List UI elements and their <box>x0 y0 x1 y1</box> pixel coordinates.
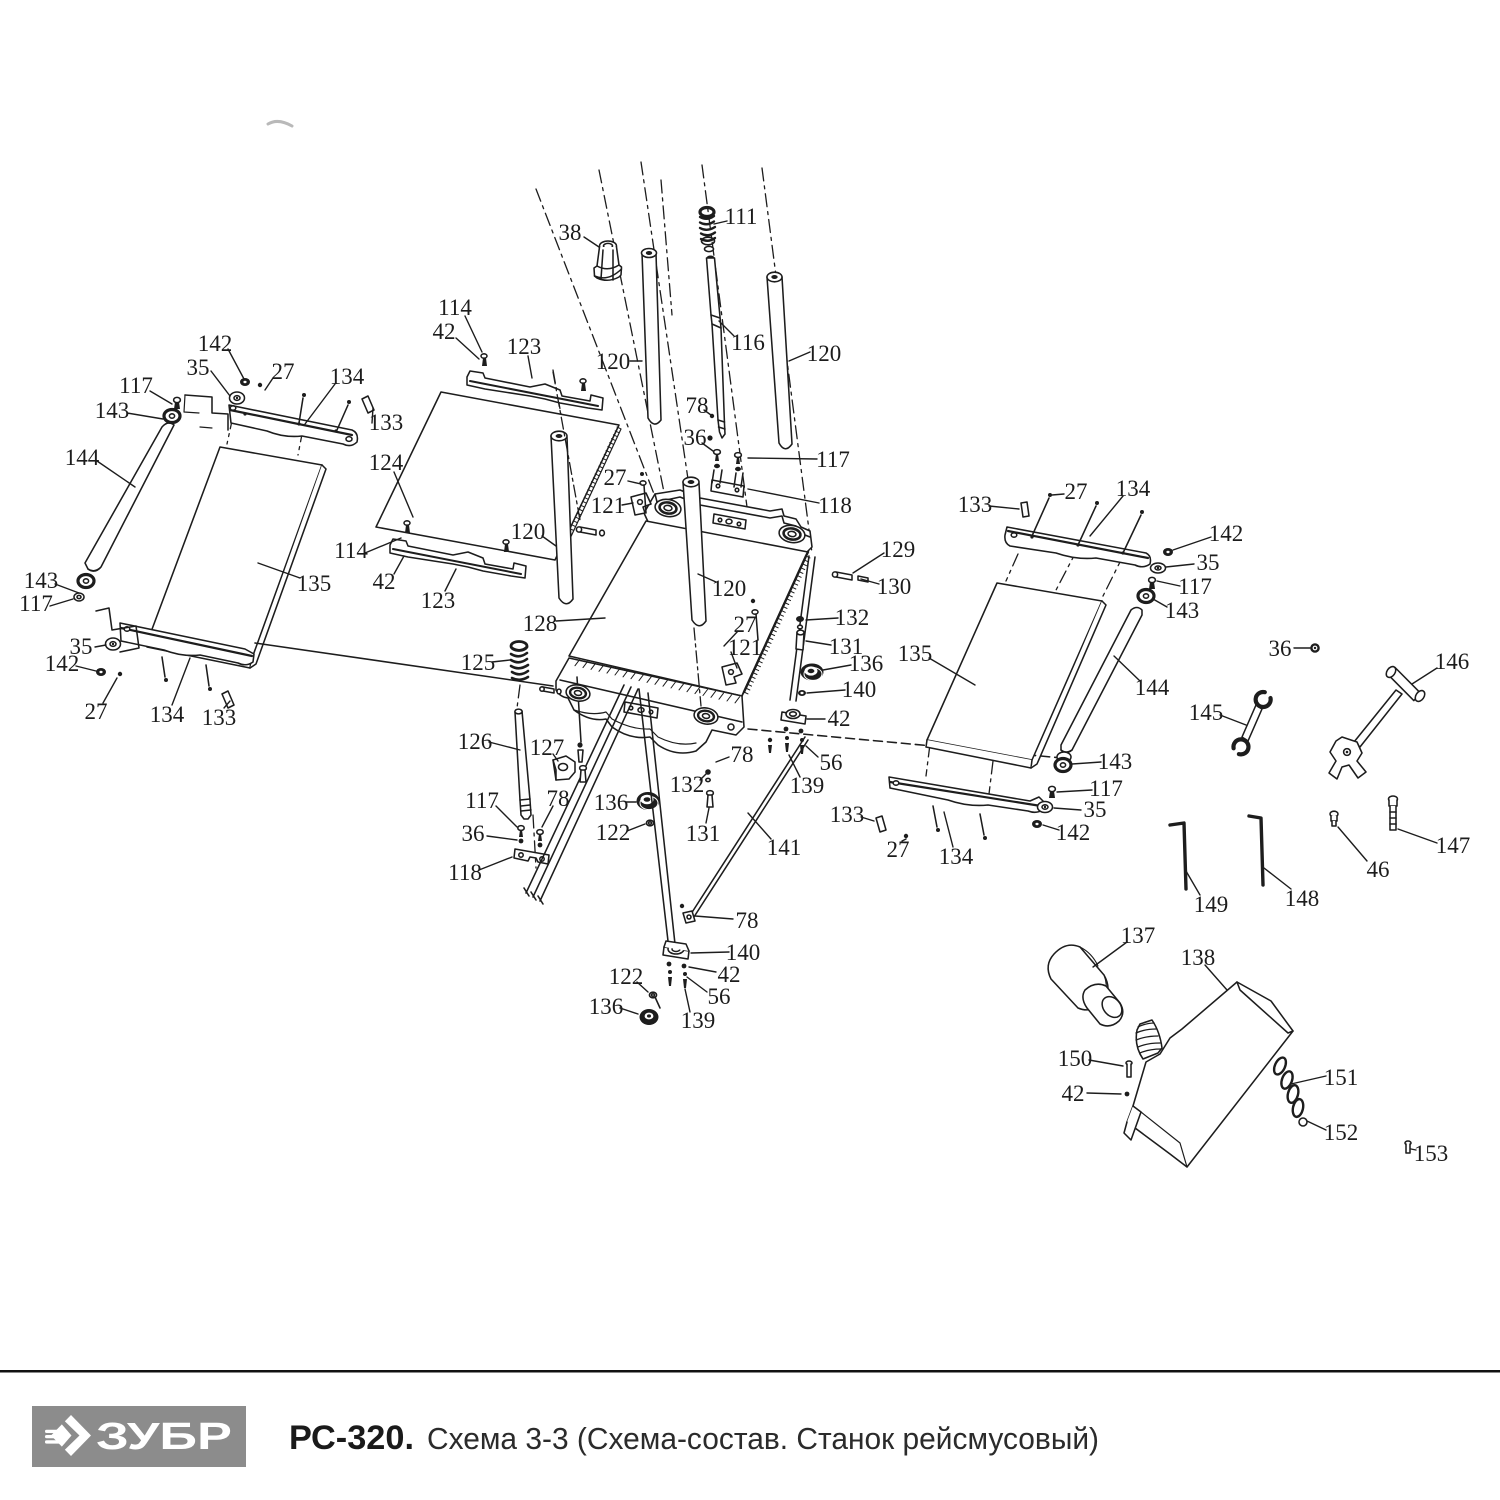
svg-text:78: 78 <box>686 393 709 418</box>
svg-text:42: 42 <box>828 706 851 731</box>
svg-text:42: 42 <box>433 319 456 344</box>
svg-text:127: 127 <box>530 735 565 760</box>
svg-text:143: 143 <box>24 568 59 593</box>
svg-text:134: 134 <box>1116 476 1151 501</box>
svg-text:78: 78 <box>731 742 754 767</box>
svg-text:27: 27 <box>85 699 108 724</box>
svg-text:27: 27 <box>734 612 757 637</box>
svg-text:117: 117 <box>1178 574 1212 599</box>
svg-text:150: 150 <box>1058 1046 1093 1071</box>
svg-text:142: 142 <box>45 651 80 676</box>
svg-text:27: 27 <box>604 465 627 490</box>
svg-text:116: 116 <box>731 330 765 355</box>
svg-text:120: 120 <box>596 349 631 374</box>
svg-text:120: 120 <box>511 519 546 544</box>
svg-text:46: 46 <box>1367 857 1390 882</box>
svg-text:148: 148 <box>1285 886 1320 911</box>
svg-text:143: 143 <box>1098 749 1133 774</box>
svg-text:ЗУБР: ЗУБР <box>96 1416 232 1458</box>
svg-text:123: 123 <box>421 588 456 613</box>
svg-text:152: 152 <box>1324 1120 1359 1145</box>
svg-text:136: 136 <box>589 994 624 1019</box>
svg-text:142: 142 <box>1209 521 1244 546</box>
svg-text:151: 151 <box>1324 1065 1359 1090</box>
svg-text:140: 140 <box>842 677 877 702</box>
svg-text:142: 142 <box>1056 820 1091 845</box>
svg-text:78: 78 <box>547 786 570 811</box>
svg-text:149: 149 <box>1194 892 1229 917</box>
svg-text:35: 35 <box>1084 797 1107 822</box>
svg-text:136: 136 <box>849 651 884 676</box>
svg-text:117: 117 <box>465 788 499 813</box>
svg-text:143: 143 <box>95 398 130 423</box>
svg-text:137: 137 <box>1121 923 1156 948</box>
svg-text:138: 138 <box>1181 945 1216 970</box>
svg-text:131: 131 <box>686 821 721 846</box>
svg-text:144: 144 <box>1135 675 1170 700</box>
svg-text:129: 129 <box>881 537 916 562</box>
svg-text:120: 120 <box>712 576 747 601</box>
svg-text:142: 142 <box>198 331 233 356</box>
svg-text:Схема 3-3 (Схема-состав. Стано: Схема 3-3 (Схема-состав. Станок рейсмусо… <box>427 1421 1099 1456</box>
svg-text:123: 123 <box>507 334 542 359</box>
svg-text:114: 114 <box>334 538 368 563</box>
svg-text:РС-320.: РС-320. <box>289 1419 414 1457</box>
svg-text:56: 56 <box>708 984 731 1009</box>
svg-text:117: 117 <box>816 447 850 472</box>
svg-text:42: 42 <box>1062 1081 1085 1106</box>
svg-text:118: 118 <box>448 860 482 885</box>
svg-text:27: 27 <box>887 837 910 862</box>
svg-text:143: 143 <box>1165 598 1200 623</box>
svg-text:36: 36 <box>462 821 485 846</box>
svg-text:122: 122 <box>596 820 631 845</box>
svg-text:132: 132 <box>835 605 870 630</box>
svg-text:117: 117 <box>19 591 53 616</box>
svg-text:27: 27 <box>272 359 295 384</box>
svg-text:121: 121 <box>591 493 626 518</box>
svg-text:36: 36 <box>1269 636 1292 661</box>
svg-text:35: 35 <box>187 355 210 380</box>
svg-text:153: 153 <box>1414 1141 1449 1166</box>
svg-text:135: 135 <box>297 571 332 596</box>
svg-text:114: 114 <box>438 295 472 320</box>
svg-text:56: 56 <box>820 750 843 775</box>
svg-text:132: 132 <box>670 772 705 797</box>
svg-text:125: 125 <box>461 650 496 675</box>
svg-text:136: 136 <box>594 790 629 815</box>
svg-text:128: 128 <box>523 611 558 636</box>
svg-text:133: 133 <box>369 410 404 435</box>
svg-text:145: 145 <box>1189 700 1224 725</box>
svg-text:147: 147 <box>1436 833 1471 858</box>
svg-text:121: 121 <box>728 635 763 660</box>
svg-text:126: 126 <box>458 729 493 754</box>
svg-text:36: 36 <box>684 425 707 450</box>
svg-text:133: 133 <box>202 705 237 730</box>
svg-text:111: 111 <box>725 204 758 229</box>
svg-text:146: 146 <box>1435 649 1470 674</box>
svg-text:134: 134 <box>150 702 185 727</box>
svg-text:141: 141 <box>767 835 802 860</box>
svg-text:135: 135 <box>898 641 933 666</box>
svg-text:134: 134 <box>939 844 974 869</box>
svg-text:78: 78 <box>736 908 759 933</box>
svg-text:38: 38 <box>559 220 582 245</box>
svg-text:118: 118 <box>818 493 852 518</box>
svg-text:122: 122 <box>609 964 644 989</box>
svg-text:139: 139 <box>681 1008 716 1033</box>
svg-text:35: 35 <box>1197 550 1220 575</box>
svg-text:134: 134 <box>330 364 365 389</box>
svg-text:117: 117 <box>119 373 153 398</box>
svg-text:27: 27 <box>1065 479 1088 504</box>
svg-text:139: 139 <box>790 773 825 798</box>
svg-text:130: 130 <box>877 574 912 599</box>
svg-text:124: 124 <box>369 450 404 475</box>
svg-text:42: 42 <box>373 569 396 594</box>
svg-text:133: 133 <box>830 802 865 827</box>
svg-text:133: 133 <box>958 492 993 517</box>
svg-text:120: 120 <box>807 341 842 366</box>
svg-text:144: 144 <box>65 445 100 470</box>
